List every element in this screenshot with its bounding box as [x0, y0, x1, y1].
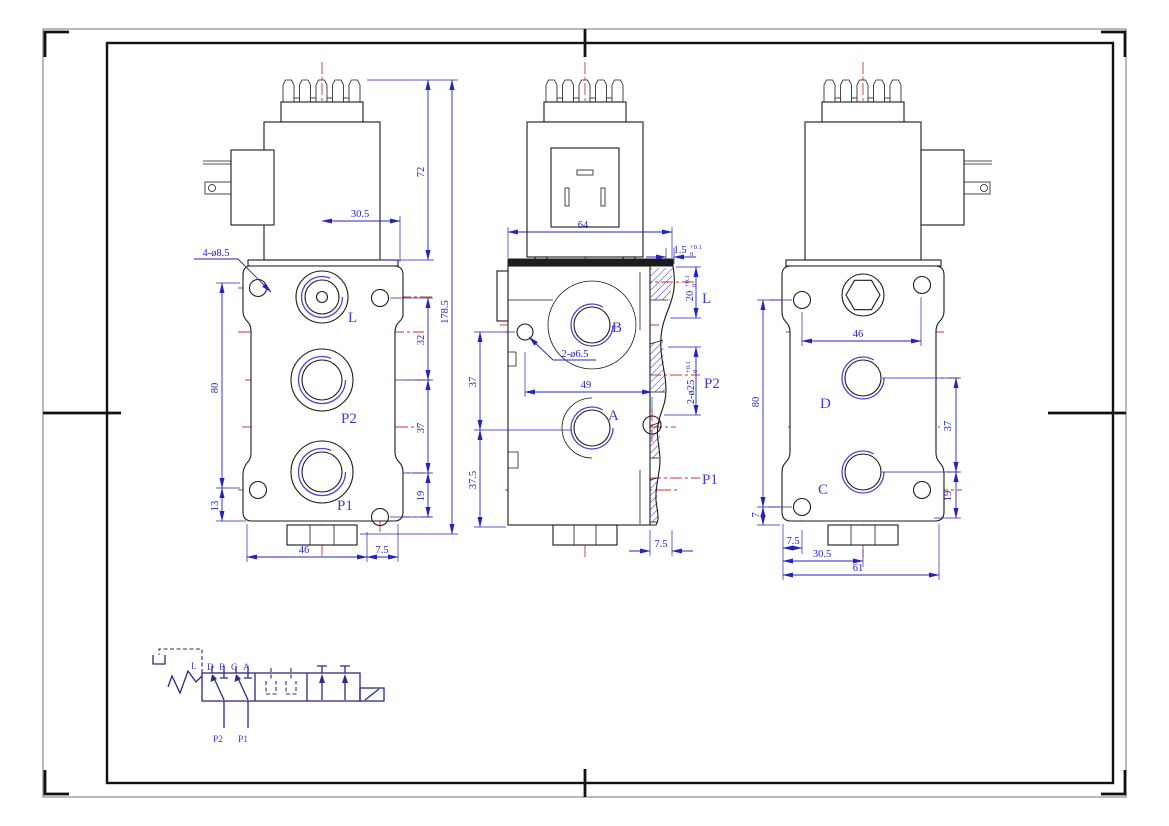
port-label-p1: P1	[337, 498, 353, 514]
dim-1-5: 1.5	[673, 245, 686, 256]
dim-30-5: 30.5	[813, 549, 831, 560]
dim-80: 80	[751, 397, 762, 408]
dim-bore-tol-dn: 0	[692, 370, 699, 373]
dim-49: 49	[581, 380, 592, 391]
port-stub	[340, 666, 350, 673]
flow-p2-d	[214, 677, 225, 700]
dim-coil-offset: 30.5	[351, 209, 369, 220]
flow-arrowhead	[211, 674, 218, 682]
port-label-d: D	[820, 396, 831, 412]
flow-arrowhead	[235, 674, 242, 682]
valve-body-side	[508, 266, 650, 525]
schematic-label-b: B	[219, 663, 225, 673]
connector-pin-hole	[981, 185, 988, 192]
dim-37-5: 37.5	[468, 471, 479, 489]
port-label-a: A	[608, 408, 619, 424]
dim-left-height: 80	[210, 383, 221, 394]
schematic-label-c: C	[231, 663, 237, 673]
spring-symbol	[168, 671, 202, 693]
corner-mark-bottom-left	[45, 770, 69, 794]
dim-bore-group: 2-ø25 +0.1 0	[685, 361, 699, 404]
dim-20-tol-dn: 0	[691, 284, 698, 287]
valve-body-rear	[782, 266, 944, 521]
dim-20-tol-up: +0.1	[684, 275, 691, 287]
dim-46: 46	[853, 329, 864, 340]
connector-face	[551, 148, 619, 227]
flow-p1-c	[238, 677, 249, 700]
schematic-label-p1: P1	[238, 735, 248, 745]
dim-7-5: 7.5	[654, 539, 667, 550]
bottom-nut	[828, 525, 898, 545]
side-tab	[497, 271, 508, 321]
callout-mount-holes: 4-ø8.5	[202, 248, 229, 259]
flow-arrowhead	[319, 674, 325, 683]
section-label-l: L	[702, 291, 711, 307]
dim-32: 32	[416, 335, 427, 346]
drawing-sheet: 4-ø8.5 72 178.5 30.5 80 13 32 37 19 46 7…	[0, 0, 1169, 826]
schematic-label-p2: P2	[213, 735, 223, 745]
schematic-label-drain: L	[191, 662, 197, 672]
flow-arrowhead	[342, 674, 348, 683]
callout-pilot-holes: 2-ø6.5	[561, 349, 588, 360]
body-top-band	[508, 259, 673, 266]
section-label-p2: P2	[704, 376, 720, 392]
blocked-port-b	[220, 673, 228, 678]
port-stub	[317, 666, 327, 673]
transition-symbol	[266, 681, 276, 694]
dim-7: 7	[751, 512, 762, 517]
dim-coil-width: 64	[578, 220, 589, 231]
dim-bore-tol-up: +0.1	[685, 361, 692, 373]
engineering-drawing-canvas: 4-ø8.5 72 178.5 30.5 80 13 32 37 19 46 7…	[0, 0, 1169, 826]
tank-symbol	[153, 655, 165, 664]
dim-46: 46	[299, 545, 310, 556]
transition-symbol	[286, 681, 296, 694]
dim-20: 20	[685, 291, 696, 302]
connector-pin-hole	[209, 185, 216, 192]
dim-13: 13	[210, 501, 221, 512]
dim-37: 37	[416, 423, 427, 434]
dim-7-5: 7.5	[786, 536, 799, 547]
corner-mark-top-left	[45, 32, 69, 57]
solenoid-coil	[805, 122, 921, 260]
body-top-plate	[248, 260, 398, 266]
dim-total-height: 178.5	[440, 300, 451, 324]
solenoid-connector	[203, 150, 274, 225]
dim-bore: 2-ø25	[686, 380, 697, 405]
valve-envelope	[202, 673, 360, 701]
bottom-nut	[287, 525, 357, 545]
port-label-l: L	[348, 310, 357, 326]
dim-37: 37	[943, 421, 954, 432]
side-view: 64 2-ø6.5 49 37 37.5 1.5 +0.1 0 20 +0.1 …	[468, 62, 720, 560]
front-view: 4-ø8.5 72 178.5 30.5 80 13 32 37 19 46 7…	[194, 62, 458, 562]
dim-19: 19	[943, 491, 954, 502]
body-top-plate	[786, 260, 941, 266]
dim-1-5-tol-up: +0.1	[690, 244, 702, 251]
hydraulic-schematic: L D B C A P2 P1	[153, 649, 384, 745]
dim-1-5-tol-dn: 0	[690, 251, 693, 258]
section-label-p1: P1	[702, 472, 718, 488]
port-label-b: B	[612, 320, 622, 336]
blocked-port-a	[244, 673, 252, 678]
bottom-nut	[553, 525, 617, 545]
schematic-label-a: A	[243, 663, 250, 673]
dim-coil-height: 72	[416, 167, 427, 178]
schematic-label-d: D	[207, 663, 214, 673]
solenoid-connector	[921, 150, 992, 225]
valve-body-front	[243, 266, 403, 521]
dim-7-5: 7.5	[375, 545, 388, 556]
solenoid-coil	[264, 122, 380, 260]
port-label-p2: P2	[341, 411, 357, 427]
dim-37: 37	[468, 377, 479, 388]
rear-view: 46 80 7 37 19 7.5 30.5 61 D C	[751, 62, 992, 580]
port-label-c: C	[818, 482, 828, 498]
dim-19: 19	[416, 491, 427, 502]
dim-61: 61	[853, 563, 864, 574]
